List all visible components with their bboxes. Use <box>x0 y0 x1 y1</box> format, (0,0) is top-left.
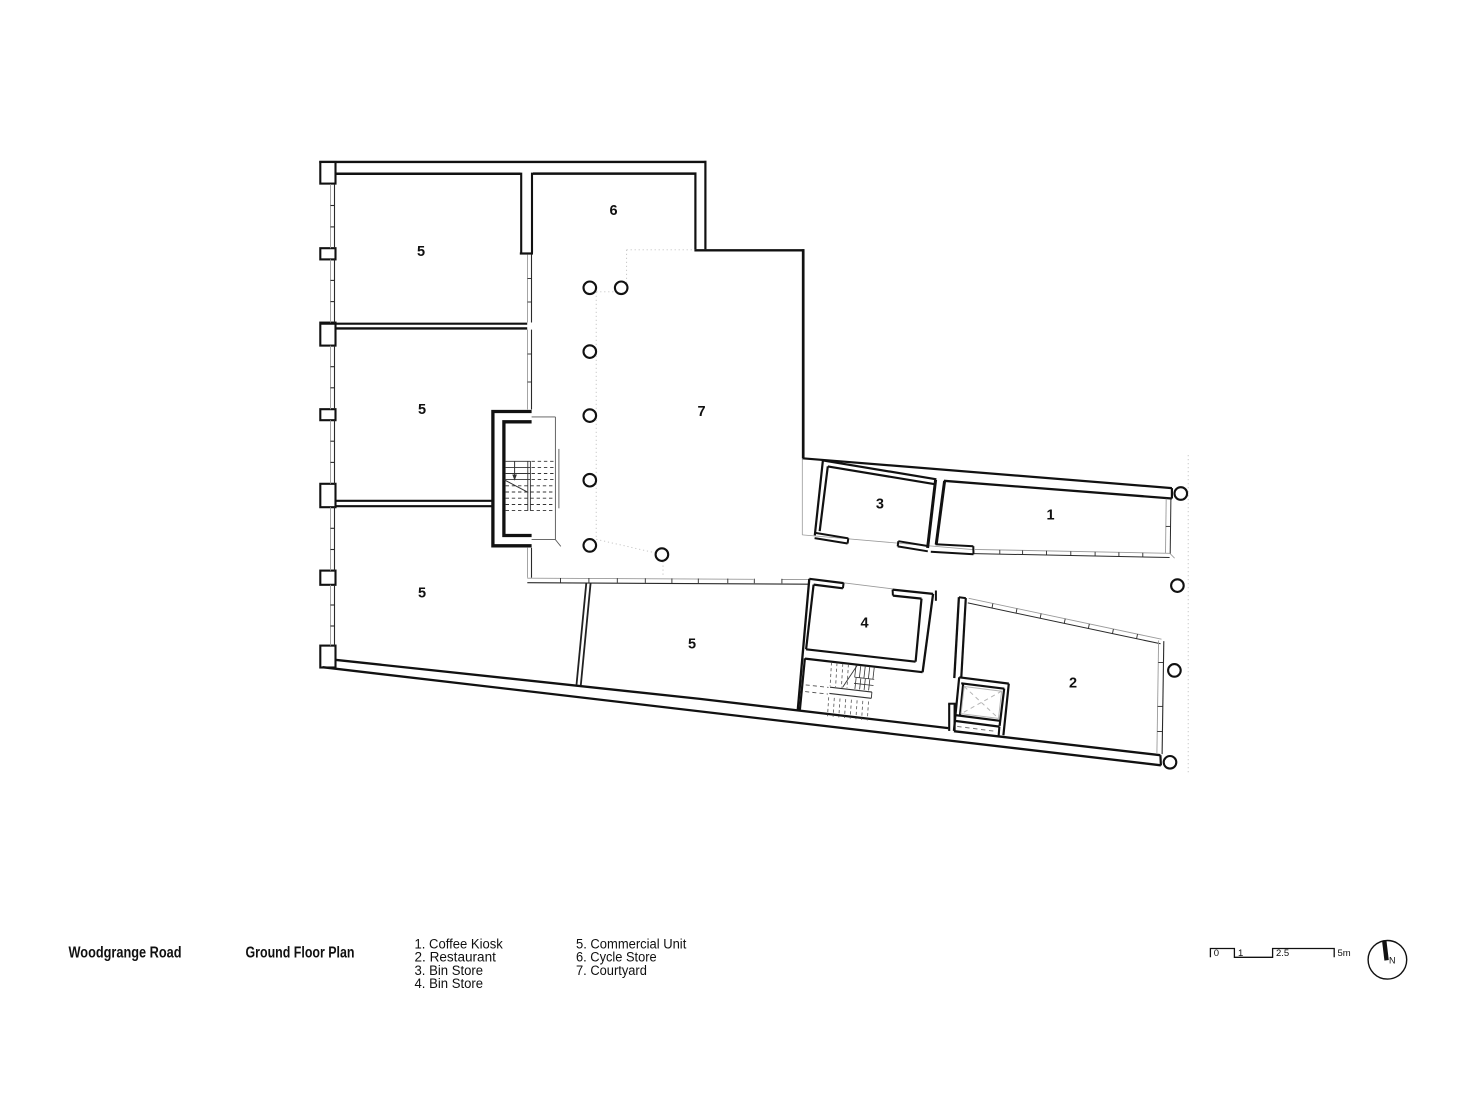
svg-text:3: 3 <box>876 497 884 513</box>
svg-text:6: 6 <box>609 203 617 219</box>
svg-text:5: 5 <box>688 637 696 653</box>
svg-text:5: 5 <box>418 586 426 602</box>
svg-text:4. Bin Store: 4. Bin Store <box>415 976 484 991</box>
svg-text:7. Courtyard: 7. Courtyard <box>576 963 647 978</box>
svg-text:7: 7 <box>698 404 706 420</box>
svg-text:5m: 5m <box>1338 948 1351 959</box>
svg-text:5: 5 <box>417 244 425 260</box>
svg-text:0: 0 <box>1214 948 1219 959</box>
svg-text:4: 4 <box>860 616 868 632</box>
svg-text:1: 1 <box>1047 508 1055 524</box>
svg-text:Ground Floor Plan: Ground Floor Plan <box>246 945 355 962</box>
svg-text:2: 2 <box>1069 676 1077 692</box>
svg-text:N: N <box>1389 956 1396 966</box>
svg-text:5: 5 <box>418 402 426 418</box>
svg-text:1: 1 <box>1238 948 1243 959</box>
svg-text:2.5: 2.5 <box>1276 948 1289 959</box>
svg-text:Woodgrange Road: Woodgrange Road <box>69 945 182 962</box>
